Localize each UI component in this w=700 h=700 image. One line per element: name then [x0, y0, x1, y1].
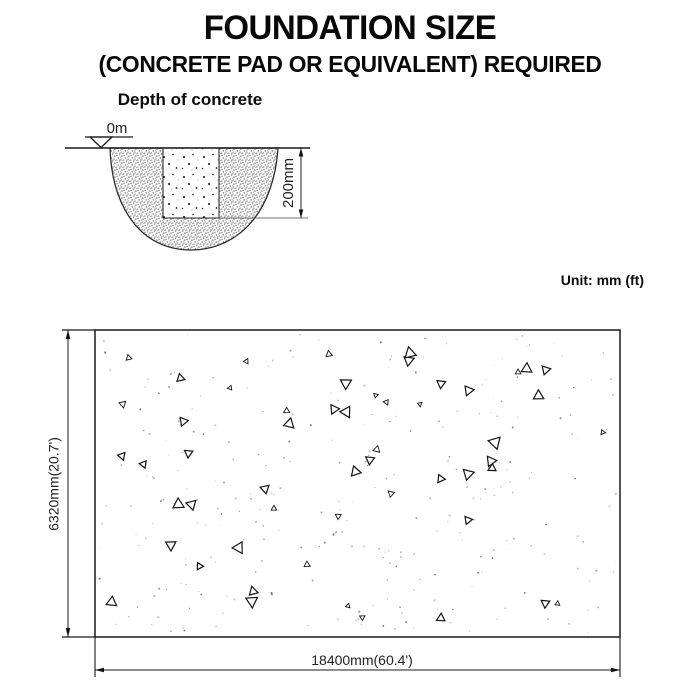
arrow-up-icon — [66, 330, 71, 339]
ground-level-triangle-icon — [90, 137, 112, 148]
arrow-right-icon — [611, 668, 620, 673]
depth-dimension-label: 200mm — [280, 158, 297, 208]
page-subtitle: (CONCRETE PAD OR EQUIVALENT) REQUIRED — [4, 51, 697, 78]
arrow-down-icon — [66, 628, 71, 637]
arrow-down-icon — [299, 210, 304, 219]
height-dimension-label: 6320mm(20.7') — [46, 437, 62, 531]
page-header: FOUNDATION SIZE (CONCRETE PAD OR EQUIVAL… — [0, 11, 700, 78]
concrete-pad — [163, 148, 219, 218]
depth-figure-title: Depth of concrete — [60, 90, 320, 110]
pad-outline — [95, 330, 620, 637]
arrow-up-icon — [299, 148, 304, 157]
depth-cross-section-drawing: 0m 200mm — [60, 112, 320, 262]
unit-note: Unit: mm (ft) — [561, 272, 644, 288]
ground-level-label: 0m — [107, 120, 128, 137]
pad-plan-drawing: 6320mm(20.7') 18400mm(60.4') — [35, 300, 665, 690]
page-title: FOUNDATION SIZE — [11, 11, 690, 47]
arrow-left-icon — [95, 668, 104, 673]
foundation-diagram-page: FOUNDATION SIZE (CONCRETE PAD OR EQUIVAL… — [0, 0, 700, 700]
width-dimension-label: 18400mm(60.4') — [311, 652, 413, 668]
concrete-texture — [99, 334, 617, 633]
